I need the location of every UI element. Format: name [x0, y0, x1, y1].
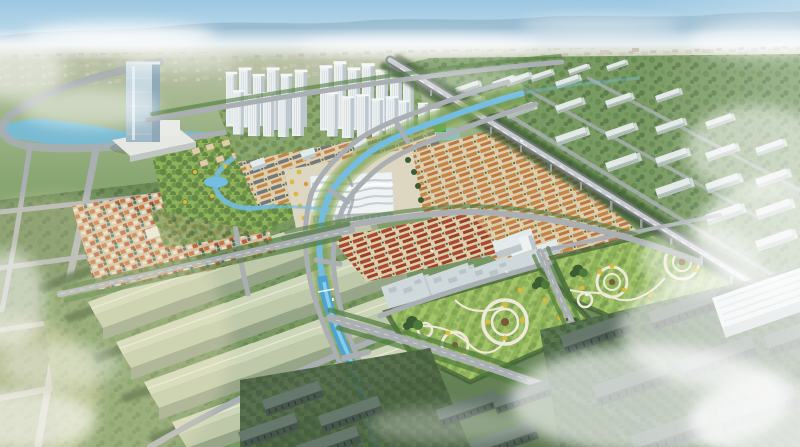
aerial-city-render: [0, 0, 800, 447]
fog-right-edge: [640, 0, 800, 447]
